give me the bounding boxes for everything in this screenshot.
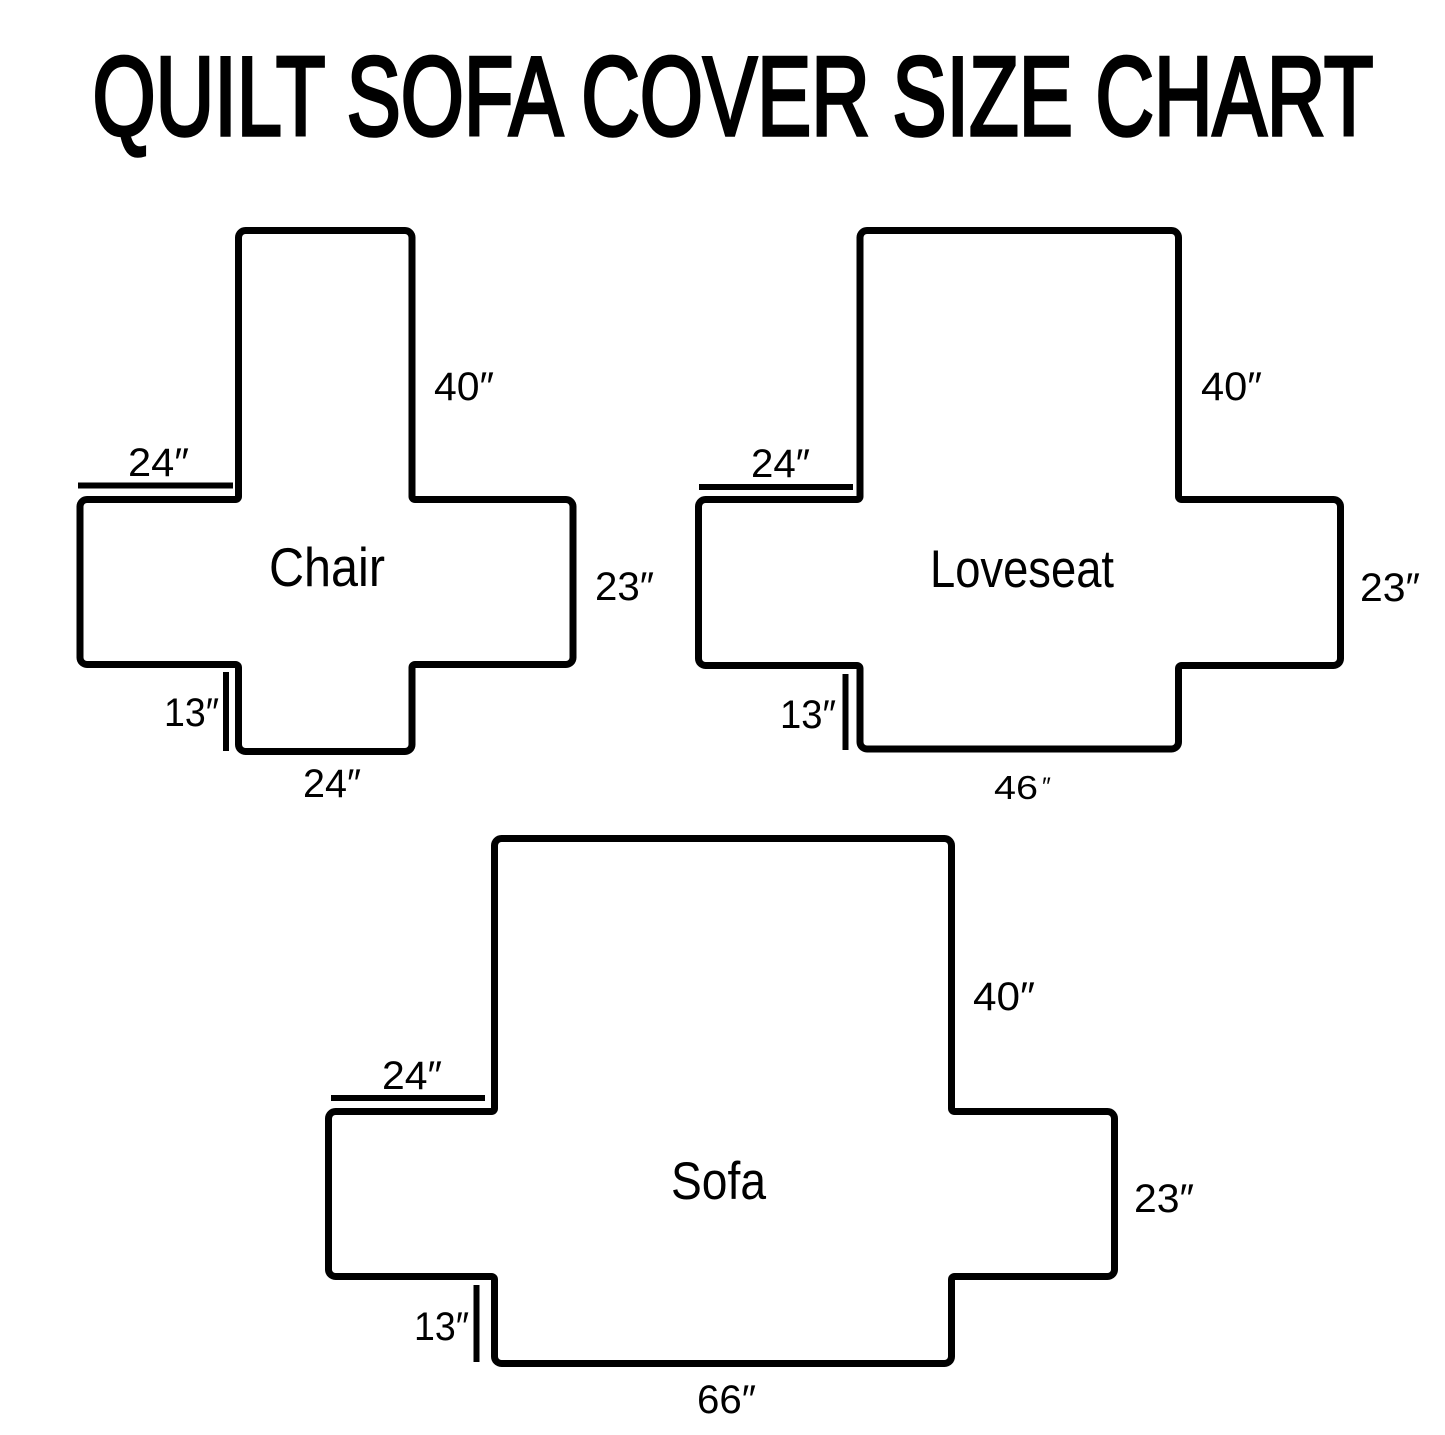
svg-text:Sofa: Sofa (671, 1152, 766, 1211)
svg-text:QUILT SOFA COVER SIZE CHART: QUILT SOFA COVER SIZE CHART (93, 34, 1374, 159)
svg-text:24″: 24″ (128, 441, 189, 485)
svg-text:24″: 24″ (751, 442, 810, 486)
svg-text:23″: 23″ (1134, 1177, 1194, 1221)
svg-text:46: 46 (994, 769, 1038, 806)
svg-text:23″: 23″ (1360, 566, 1420, 610)
svg-text:66″: 66″ (697, 1378, 756, 1422)
svg-text:Loveseat: Loveseat (930, 540, 1114, 599)
svg-text:Chair: Chair (269, 536, 385, 598)
svg-text:24″: 24″ (303, 762, 361, 806)
svg-text:″: ″ (1042, 773, 1051, 801)
svg-text:24″: 24″ (382, 1054, 442, 1098)
svg-text:23″: 23″ (595, 565, 654, 609)
svg-text:13″: 13″ (164, 691, 219, 735)
svg-text:40″: 40″ (434, 365, 494, 409)
svg-text:40″: 40″ (1201, 365, 1262, 409)
svg-text:40″: 40″ (973, 975, 1035, 1019)
svg-text:13″: 13″ (414, 1305, 469, 1349)
svg-text:13″: 13″ (780, 693, 836, 737)
